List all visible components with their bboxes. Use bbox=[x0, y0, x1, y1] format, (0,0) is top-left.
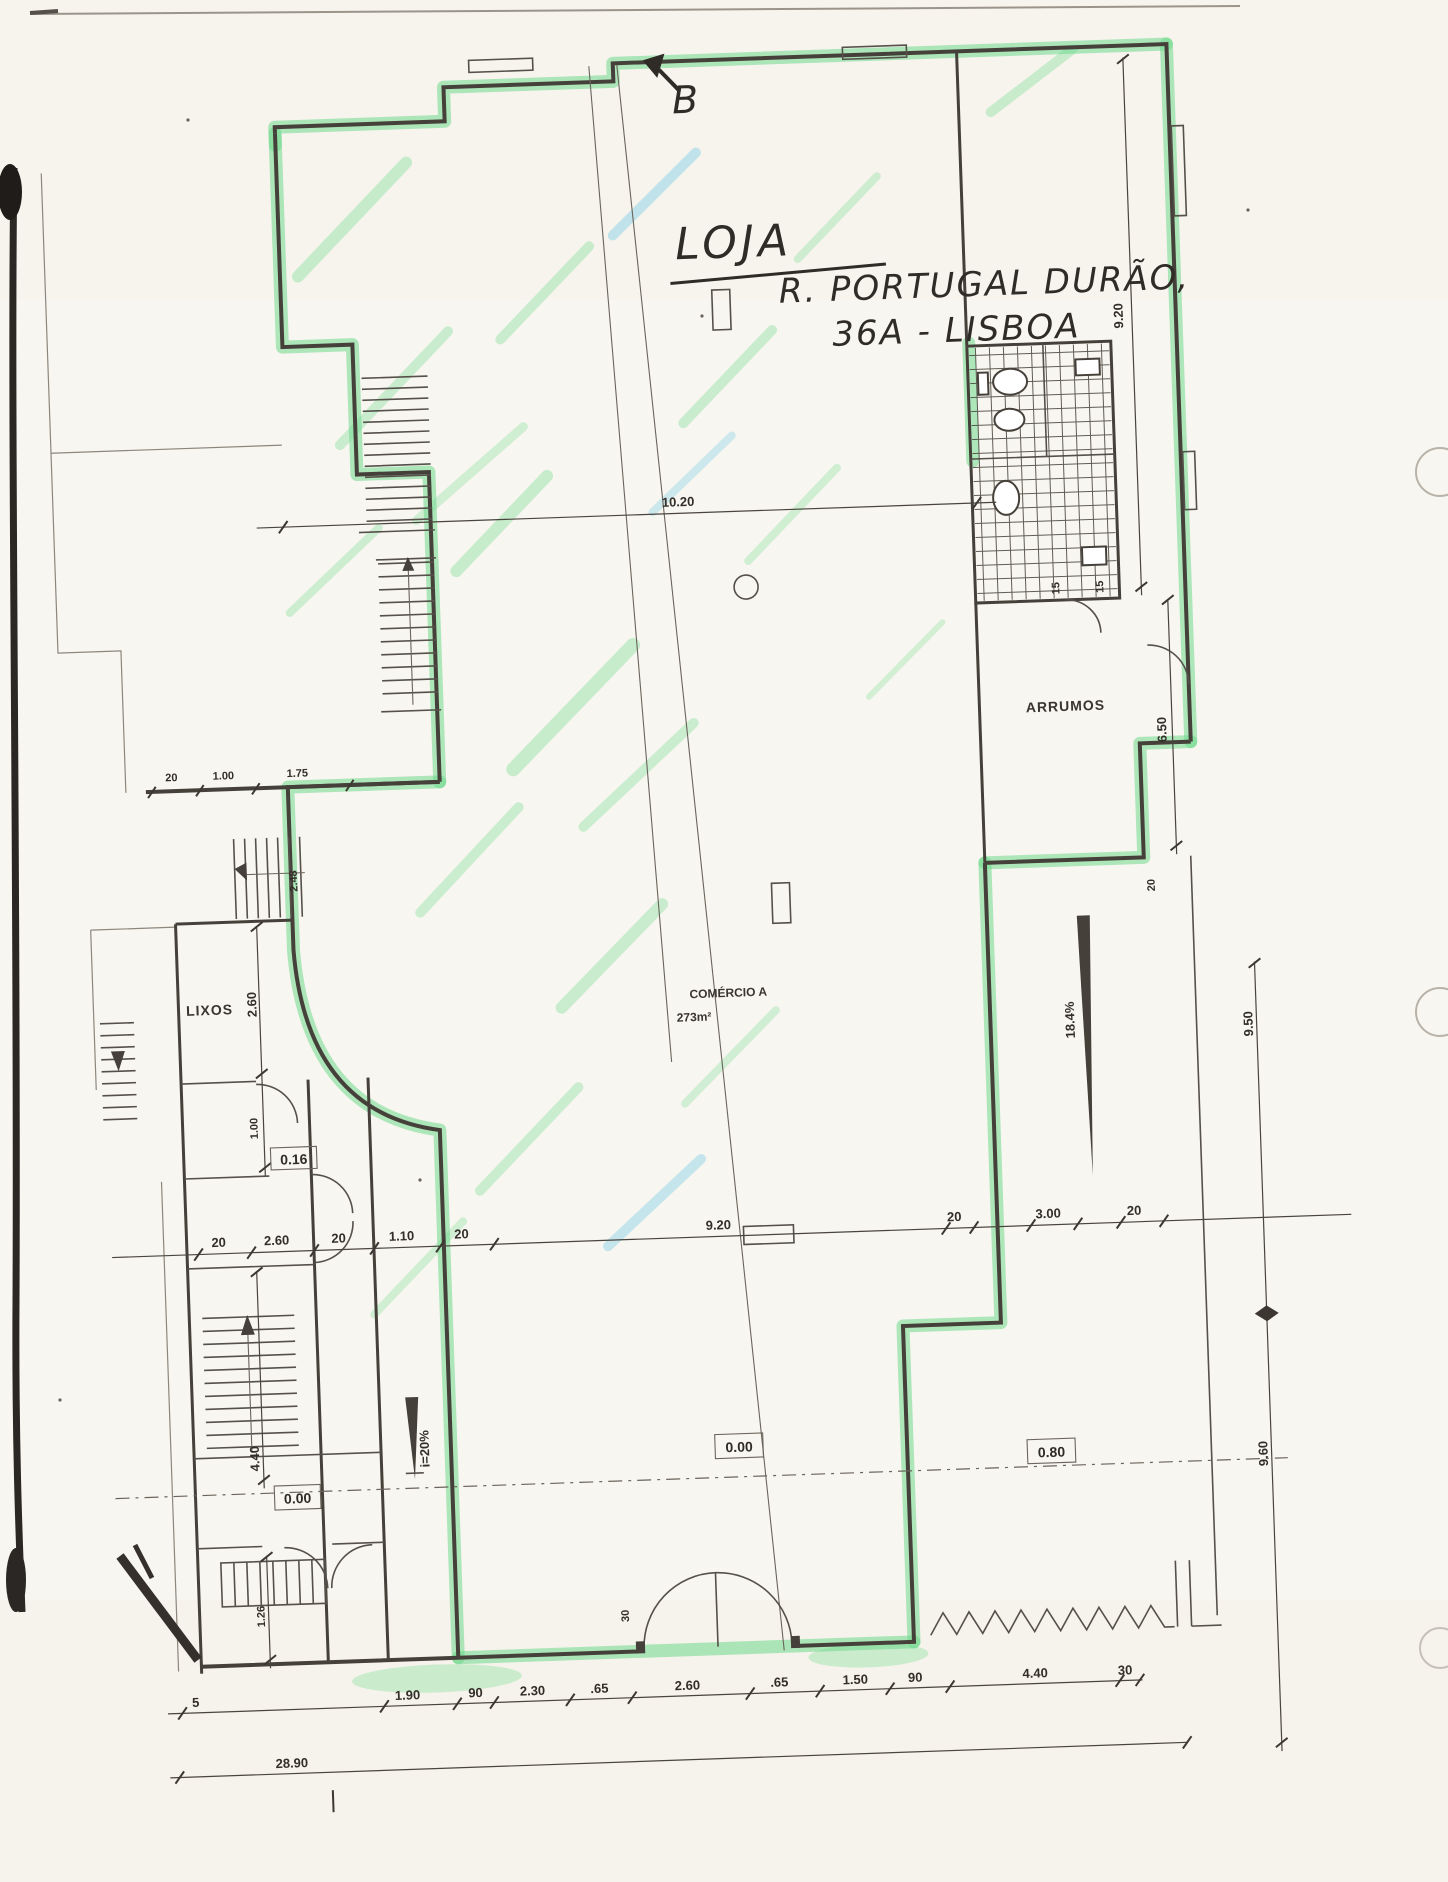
dim-left-lixos: 2.60 bbox=[244, 992, 260, 1018]
dim-mid-8: 20 bbox=[1127, 1203, 1142, 1218]
dim-total-width: 28.90 bbox=[275, 1755, 308, 1771]
dim-bot-7: 1.50 bbox=[842, 1671, 868, 1687]
sink-icon bbox=[994, 408, 1025, 431]
scan-top-mark bbox=[30, 11, 58, 13]
dim-wc-a: 15 bbox=[1050, 582, 1062, 595]
dim-mid-3: 1.10 bbox=[389, 1228, 415, 1244]
level-entrance: 0.80 bbox=[1038, 1443, 1066, 1460]
speckle-2 bbox=[1246, 208, 1249, 211]
dim-bot-4: .65 bbox=[590, 1681, 609, 1697]
dim-top-span: 10.20 bbox=[662, 494, 695, 510]
level-shop: 0.00 bbox=[725, 1438, 753, 1455]
speckle-1 bbox=[186, 118, 189, 121]
dim-left-bottom: 1.26 bbox=[255, 1606, 268, 1628]
dim-mid-7: 3.00 bbox=[1035, 1205, 1061, 1221]
dim-bot-1: 1.90 bbox=[395, 1687, 421, 1703]
dim-bot-8: 90 bbox=[908, 1670, 923, 1685]
dim-storage-wall: 20 bbox=[1146, 879, 1158, 892]
level-stair: 0.00 bbox=[284, 1490, 312, 1507]
dim-mid-0: 20 bbox=[211, 1235, 226, 1250]
ramp-left-slope: i=20% bbox=[416, 1429, 432, 1467]
dim-mid-1: 2.60 bbox=[264, 1232, 290, 1248]
trash-room-label: LIXOS bbox=[186, 1001, 234, 1019]
dim-left-stair: 2.48 bbox=[288, 870, 301, 892]
dim-left-below-lixos: 1.00 bbox=[248, 1118, 261, 1140]
dim-mid-4: 20 bbox=[454, 1226, 469, 1241]
shop-area-label: 273m² bbox=[676, 1010, 711, 1025]
dim-bot-3: 2.30 bbox=[520, 1683, 546, 1699]
dim-door-width: 30 bbox=[620, 1610, 632, 1623]
dim-bot-5: 2.60 bbox=[674, 1677, 700, 1693]
ramp-right-slope: 18.4% bbox=[1062, 1001, 1078, 1039]
toilet-icon-2 bbox=[993, 480, 1020, 515]
dim-storage-depth: 6.50 bbox=[1154, 717, 1170, 743]
door-jamb-left bbox=[636, 1641, 645, 1653]
dim-bot-10: 30 bbox=[1118, 1662, 1133, 1677]
dim-bot-9: 4.40 bbox=[1022, 1665, 1048, 1681]
speckle-3 bbox=[418, 1178, 421, 1181]
dim-mid-5: 9.20 bbox=[705, 1217, 731, 1233]
dim-wc-b: 15 bbox=[1094, 580, 1106, 593]
storage-room-label: ARRUMOS bbox=[1026, 697, 1106, 716]
washbasin-icon bbox=[1075, 359, 1100, 376]
scan-left-blob-bottom bbox=[6, 1548, 26, 1612]
dim-right-bottom: 9.60 bbox=[1255, 1441, 1271, 1467]
shop-room-label: COMÉRCIO A bbox=[689, 984, 767, 1002]
dim-bot-2: 90 bbox=[468, 1685, 483, 1700]
dim-ul-0: 20 bbox=[165, 772, 178, 784]
toilet-icon bbox=[993, 368, 1028, 395]
level-left: 0.16 bbox=[280, 1151, 308, 1168]
dim-bot-6: .65 bbox=[770, 1674, 789, 1690]
dim-right-mid: 9.50 bbox=[1240, 1011, 1256, 1037]
washbasin-icon-2 bbox=[1082, 546, 1107, 565]
handwritten-title: LOJA bbox=[674, 215, 793, 270]
scanned-floor-plan: B LOJA R. PORTUGAL DURÃO, 36A - LISBOA A… bbox=[0, 0, 1448, 1882]
section-letter: B bbox=[671, 77, 699, 122]
dim-bot-0: 5 bbox=[192, 1695, 200, 1710]
floor-plan-canvas: B LOJA R. PORTUGAL DURÃO, 36A - LISBOA A… bbox=[0, 0, 1448, 1882]
dim-ul-1: 1.00 bbox=[212, 770, 234, 783]
speckle-4 bbox=[700, 314, 703, 317]
dim-mid-2: 20 bbox=[331, 1230, 346, 1245]
dim-ul-2: 1.75 bbox=[286, 767, 308, 780]
dim-left-ramp: 4.40 bbox=[247, 1446, 263, 1472]
speckle-5 bbox=[58, 1398, 61, 1401]
toilet-tank-icon bbox=[978, 372, 989, 394]
door-jamb-right bbox=[791, 1636, 800, 1648]
dim-right-top: 9.20 bbox=[1110, 303, 1126, 329]
dim-mid-6: 20 bbox=[947, 1209, 962, 1224]
